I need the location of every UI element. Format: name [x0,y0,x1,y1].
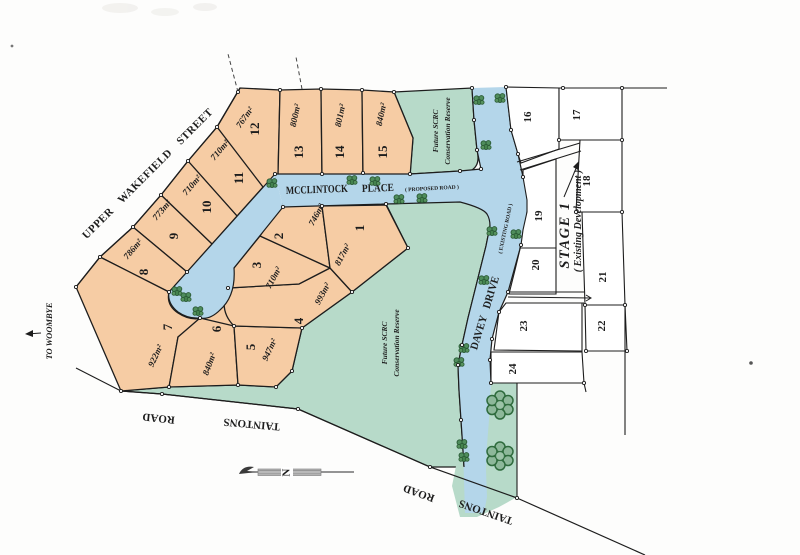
svg-text:TAINTONS: TAINTONS [223,416,280,433]
svg-text:11: 11 [231,172,246,184]
svg-text:Conservation Reserve: Conservation Reserve [392,309,401,377]
svg-text:9: 9 [166,232,181,239]
svg-text:Future SCRC: Future SCRC [380,321,389,365]
svg-text:Future SCRC: Future SCRC [431,109,440,153]
svg-text:8: 8 [136,268,151,275]
svg-text:1: 1 [352,225,367,232]
svg-text:TO WOOMBYE: TO WOOMBYE [44,302,54,359]
svg-text:22: 22 [596,320,608,332]
svg-text:4: 4 [291,317,306,324]
svg-text:7: 7 [160,323,175,330]
svg-text:15: 15 [375,145,390,159]
svg-text:3: 3 [249,261,264,268]
svg-text:20: 20 [530,259,542,271]
svg-text:Conservation Reserve: Conservation Reserve [443,97,452,165]
svg-text:18: 18 [581,175,593,187]
svg-text:16: 16 [522,111,534,123]
svg-text:10: 10 [199,201,214,214]
svg-text:MCCLINTOCK: MCCLINTOCK [286,183,349,197]
svg-text:24: 24 [507,363,519,375]
svg-text:STAGE 1: STAGE 1 [557,201,573,268]
svg-text:ROAD: ROAD [402,482,437,504]
svg-text:12: 12 [247,123,262,136]
svg-text:23: 23 [518,320,530,332]
svg-text:6: 6 [209,325,224,332]
svg-text:17: 17 [571,109,583,121]
svg-text:N: N [281,469,293,477]
svg-text:19: 19 [533,210,545,222]
svg-text:13: 13 [291,145,306,159]
svg-text:5: 5 [243,343,258,350]
svg-text:21: 21 [597,272,609,283]
svg-text:2: 2 [271,233,286,240]
svg-text:ROAD: ROAD [142,410,176,425]
svg-text:14: 14 [332,145,347,159]
